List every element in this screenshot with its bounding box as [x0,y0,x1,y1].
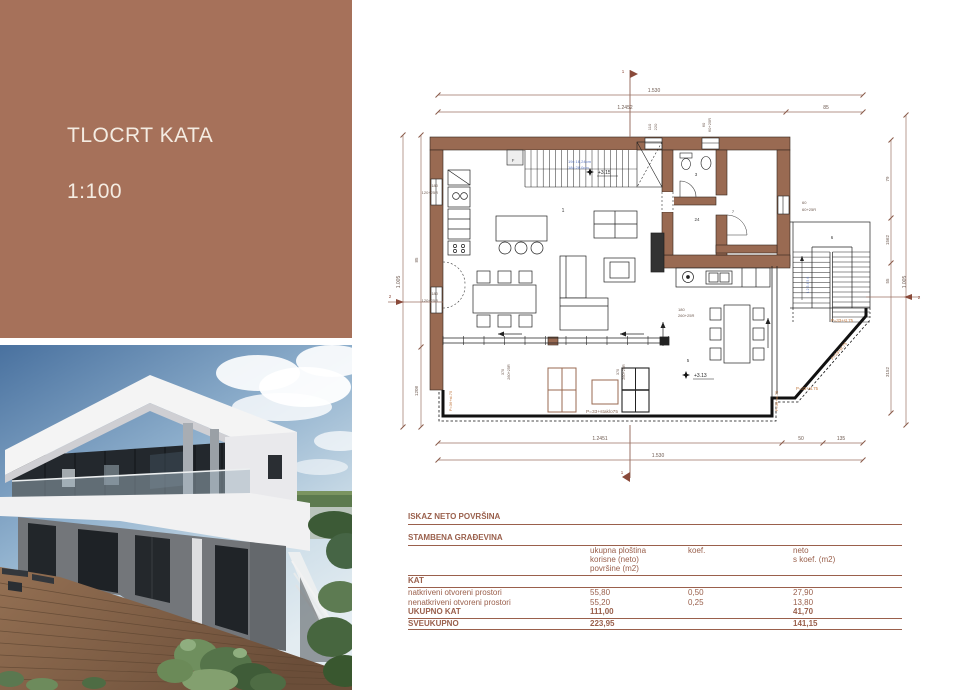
plan-label: P=36+st.75 [448,390,453,411]
plan-label: P=36+st.75 [774,390,779,411]
page: TLOCRT KATA 1:100 [0,0,960,690]
outdoor-kitchen [676,268,770,287]
drawing-scale: 1:100 [67,180,122,203]
col-header-koef: koef. [688,546,705,555]
plan-label: 180 [431,291,438,296]
plan-label: 1.005 [396,276,402,289]
kitchen-island [496,216,547,241]
plan-label: 3152 [885,366,890,377]
plan-label: 1208 [414,385,419,396]
house-render-image [0,345,352,690]
plan-label: 6 [831,235,834,240]
table-row: nenatkriveni otvoreni prostori 55,20 0,2… [408,598,902,608]
table-row: natkriveni otvoreni prostori 55,80 0,50 … [408,588,902,598]
plan-label: 260+25R [507,364,511,380]
plan-label: 5 [687,358,690,363]
bathroom-fixtures [680,153,711,170]
plan-label: 1.2451 [592,436,608,442]
group-label: KAT [408,576,424,585]
total-neto: 141,15 [793,619,817,628]
plan-label: 60 [701,122,706,127]
plan-label: 1 [622,69,625,74]
area-table: ISKAZ NETO POVRŠINA STAMBENA GRAĐEVINA u… [408,512,902,630]
plan-label: 85 [823,105,829,111]
row-neto: 27,90 [793,588,813,597]
title-panel: TLOCRT KATA 1:100 [0,0,352,338]
plan-label: 2 [918,295,921,300]
plan-label: P=33+st.75 [830,341,849,361]
terrace-dining-set [710,305,764,363]
drawing-title: TLOCRT KATA [67,124,213,147]
plan-label: 110 [647,123,652,130]
table-subtitle: STAMBENA GRAĐEVINA [408,533,503,542]
plan-label: +3.13 [694,373,707,379]
plan-label: 2 [389,294,392,299]
plan-label: 1.530 [652,453,665,459]
row-area: 55,20 [590,598,610,607]
plan-label: +3.15 [598,170,611,176]
plan-label: 55 [885,278,890,284]
plan-label: 1.005 [902,276,908,289]
row-koef: 0,25 [688,598,704,607]
plan-label: P=33+st.75 [796,386,819,391]
plan-label: 18x 28,0cm [568,165,589,170]
plan-label: 50 [798,436,804,442]
plan-label: 1 [621,470,624,475]
plan-label: 60+25R [707,118,712,132]
dining-set [473,271,536,327]
plan-label: 19x 16,24cm [568,159,592,164]
plan-label: 180 [678,307,685,312]
small-window [268,455,282,479]
plan-label: 120+25R [422,298,438,303]
plan-label: P=33+staklo75 [586,409,618,415]
plan-label: F [512,158,515,163]
plan-label: 60 [802,200,807,205]
plan-label: 60+25R [802,207,816,212]
plan-label: 180 [431,183,438,188]
total-label: SVEUKUPNO [408,619,459,628]
subtotal-label: UKUPNO KAT [408,607,461,616]
plan-label: 260+25R [622,364,626,380]
plan-label: 135 [837,436,846,442]
plan-label: 260+25R [678,313,694,318]
plan-label: 1.530 [648,88,661,94]
plan-label: 7 [732,209,735,214]
lower-wall-right [250,542,286,651]
table-subtotal-row: UKUPNO KAT 111,00 41,70 [408,607,902,619]
plan-label: 85 [414,257,419,263]
table-title: ISKAZ NETO POVRŠINA [408,512,500,521]
plan-label: 370 [616,369,620,375]
plan-label: 24 [694,217,700,222]
plan-label: 370 [501,369,505,375]
row-neto: 13,80 [793,598,813,607]
plan-label: 1 2 3 4 5 6 [806,277,810,294]
row-label: natkriveni otvoreni prostori [408,588,502,597]
row-koef: 0,50 [688,588,704,597]
plan-label: 1.2452 [617,105,633,111]
subtotal-neto: 41,70 [793,607,813,616]
floor-plan: 1.5301.24528511102206060+25R791562553152… [383,52,958,507]
row-area: 55,80 [590,588,610,597]
row-label: nenatkriveni otvoreni prostori [408,598,511,607]
table-header-row: ukupna ploština korisne (neto) površine … [408,546,902,576]
subtotal-area: 111,00 [590,607,614,616]
col-header-area: ukupna ploština korisne (neto) površine … [590,546,646,573]
section-markers [396,70,912,482]
plan-label: 220 [653,123,658,130]
plan-label: 79 [885,176,890,182]
col-header-neto: neto s koef. (m2) [793,546,835,564]
dimension-lines [388,70,920,482]
plan-label: 120+25R [422,190,438,195]
total-area: 223,95 [590,619,614,628]
plan-label: 1562 [885,234,890,245]
page-title: TLOCRT KATA 1:100 [67,122,213,206]
plan-label: 3 [695,172,698,177]
table-total-row: SVEUKUPNO 223,95 141,15 [408,619,902,630]
plan-label: 1 [562,208,565,214]
living-furniture [560,211,664,330]
plan-label: P=33+st.75 [831,318,854,323]
